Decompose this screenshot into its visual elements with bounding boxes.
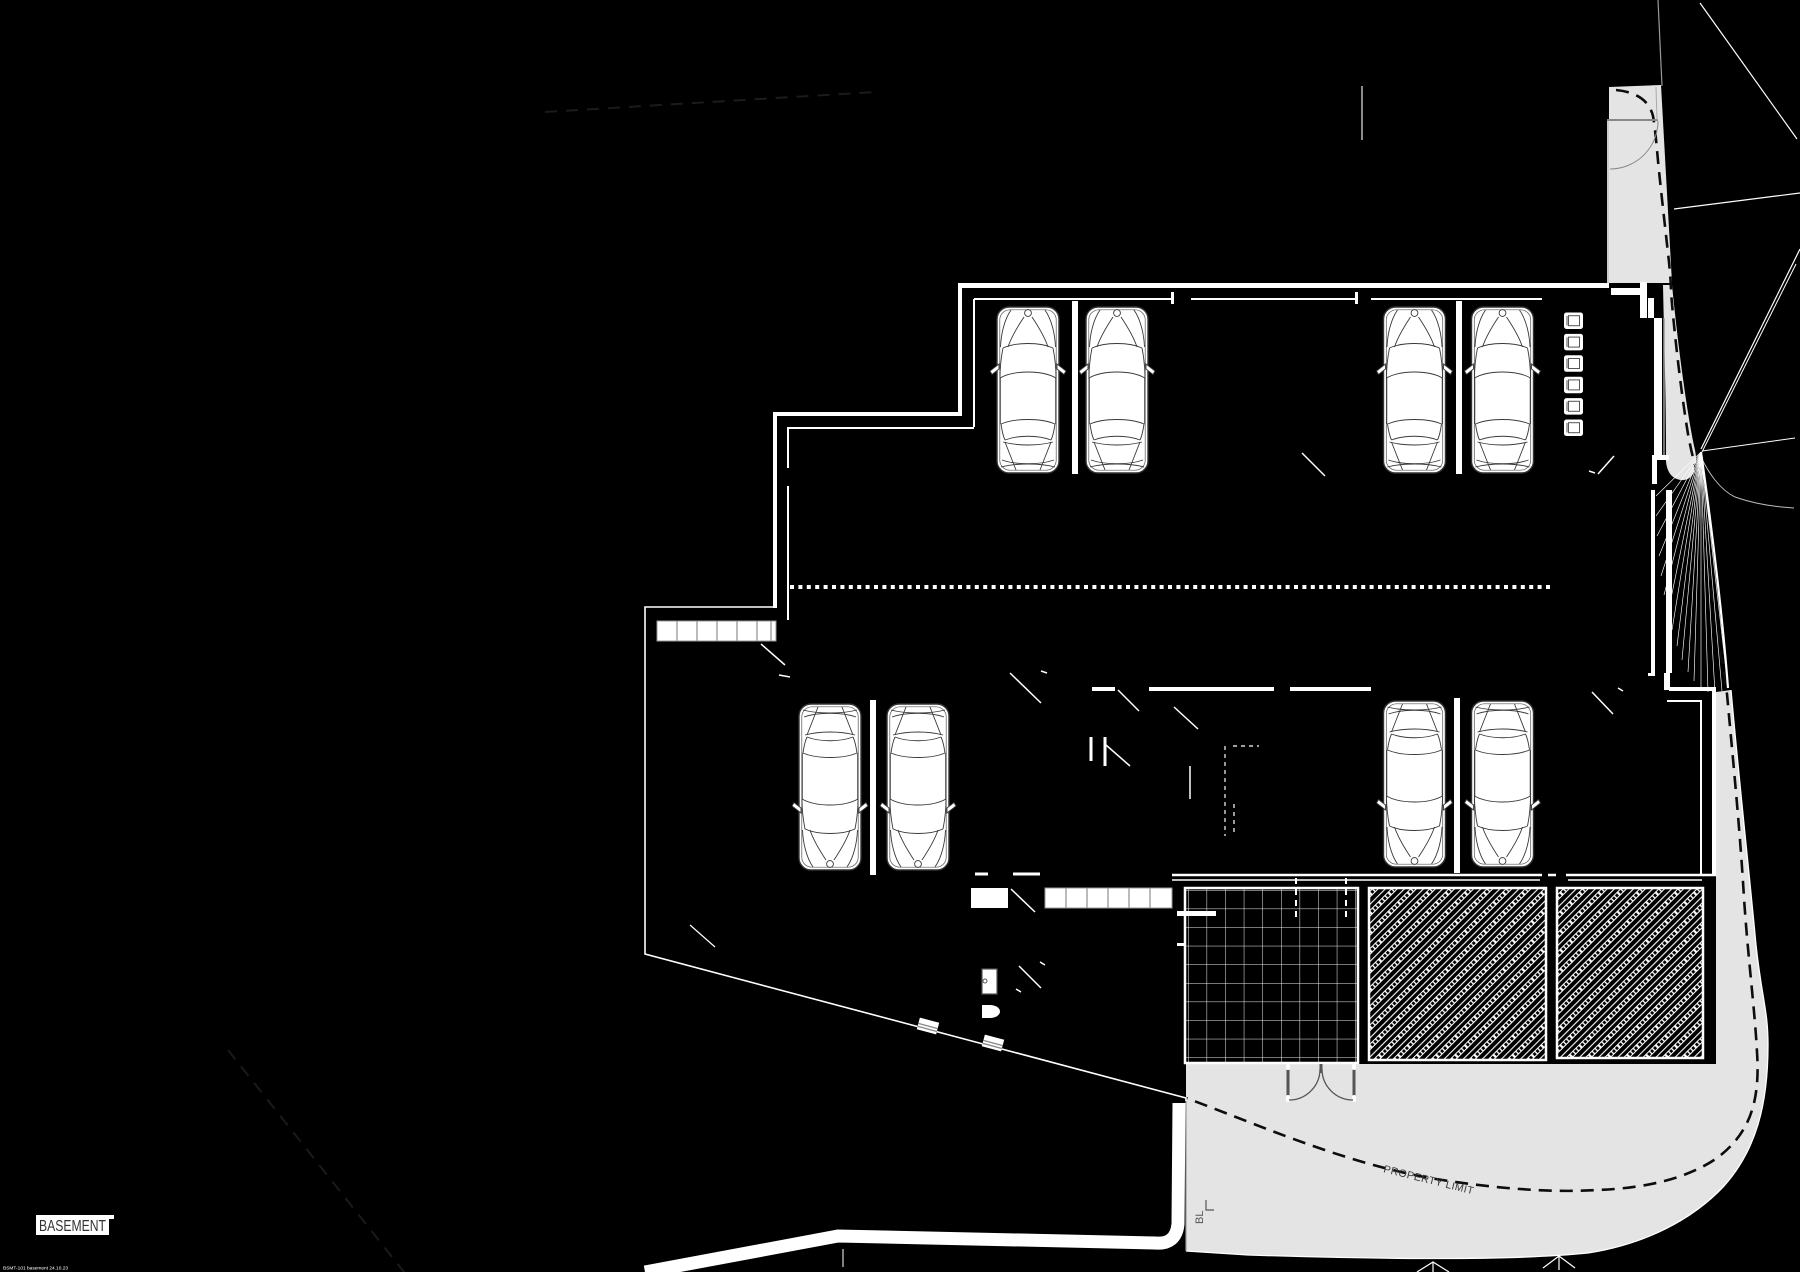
- svg-text:BASEMENT: BASEMENT: [39, 1218, 106, 1235]
- svg-text:BL: BL: [1194, 1211, 1206, 1224]
- svg-text:BSMT-101 basement 24.10.23: BSMT-101 basement 24.10.23: [3, 1266, 68, 1272]
